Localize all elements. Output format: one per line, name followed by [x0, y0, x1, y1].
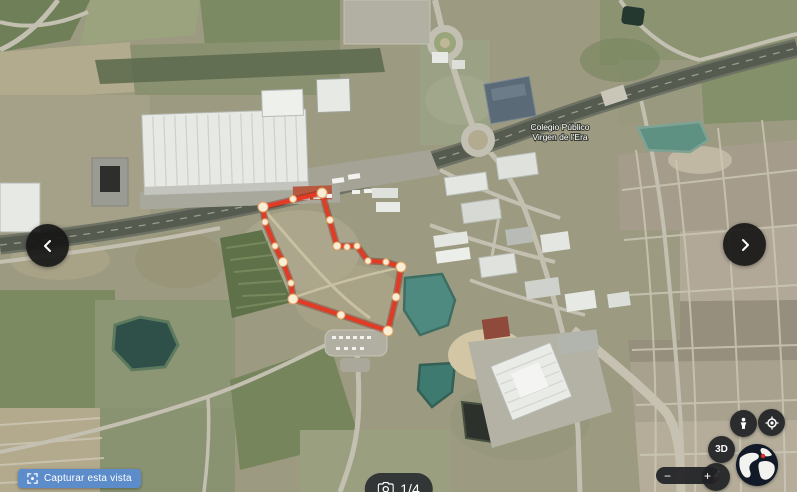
globe-view-button[interactable]: [736, 444, 778, 486]
place-label: Colegio Público Virgen de l'Era: [530, 122, 589, 142]
globe-icon: [736, 444, 778, 486]
3d-toggle-label: 3D: [715, 444, 728, 455]
chevron-right-icon: [737, 237, 753, 253]
3d-toggle-button[interactable]: 3D: [708, 436, 735, 463]
parcel-vertex-dot[interactable]: [365, 258, 371, 264]
parcel-vertex-dot[interactable]: [337, 311, 345, 319]
parcel-vertex-dot[interactable]: [279, 258, 288, 267]
parcel-vertex-dot[interactable]: [288, 280, 294, 286]
pegman-button[interactable]: [730, 410, 757, 437]
pegman-icon: [737, 417, 750, 430]
my-location-button[interactable]: [758, 409, 785, 436]
parcel-vertex-dot[interactable]: [262, 219, 268, 225]
parcel-vertex-dot[interactable]: [272, 243, 278, 249]
parcel-vertex-dot[interactable]: [317, 188, 327, 198]
parcel-vertex-dot[interactable]: [288, 294, 298, 304]
zoom-out-button[interactable]: −: [664, 470, 671, 482]
place-label-line2: Virgen de l'Era: [532, 132, 588, 142]
parcel-vertex-dot[interactable]: [354, 243, 360, 249]
chevron-left-icon: [40, 238, 56, 254]
my-location-icon: [765, 416, 779, 430]
previous-view-button[interactable]: [26, 224, 69, 267]
place-label-line1: Colegio Público: [530, 122, 589, 132]
parcel-vertex-dot[interactable]: [383, 326, 393, 336]
camera-icon: [377, 482, 393, 492]
zoom-control[interactable]: − +: [656, 467, 719, 484]
slide-counter-label: 1/4: [400, 481, 419, 492]
parcel-vertex-dot[interactable]: [333, 242, 341, 250]
parcel-vertex-dot[interactable]: [327, 217, 334, 224]
parcel-vertex-dot[interactable]: [392, 293, 400, 301]
capture-view-label: Capturar esta vista: [44, 473, 132, 484]
parcel-vertex-dot[interactable]: [383, 259, 389, 265]
parcel-vertex-dot[interactable]: [258, 202, 268, 212]
capture-view-button[interactable]: Capturar esta vista: [18, 469, 141, 488]
zoom-in-button[interactable]: +: [704, 470, 711, 482]
screenshot-frame-icon: [27, 473, 38, 484]
parcel-vertex-dot[interactable]: [290, 196, 297, 203]
parcel-vertex-dot[interactable]: [344, 244, 350, 250]
next-view-button[interactable]: [723, 223, 766, 266]
parcel-vertex-dot[interactable]: [396, 262, 406, 272]
slide-counter[interactable]: 1/4: [364, 473, 432, 492]
satellite-map[interactable]: Colegio Público Virgen de l'Era: [0, 0, 797, 492]
earth-viewport: Colegio Público Virgen de l'Era Capturar…: [0, 0, 797, 492]
